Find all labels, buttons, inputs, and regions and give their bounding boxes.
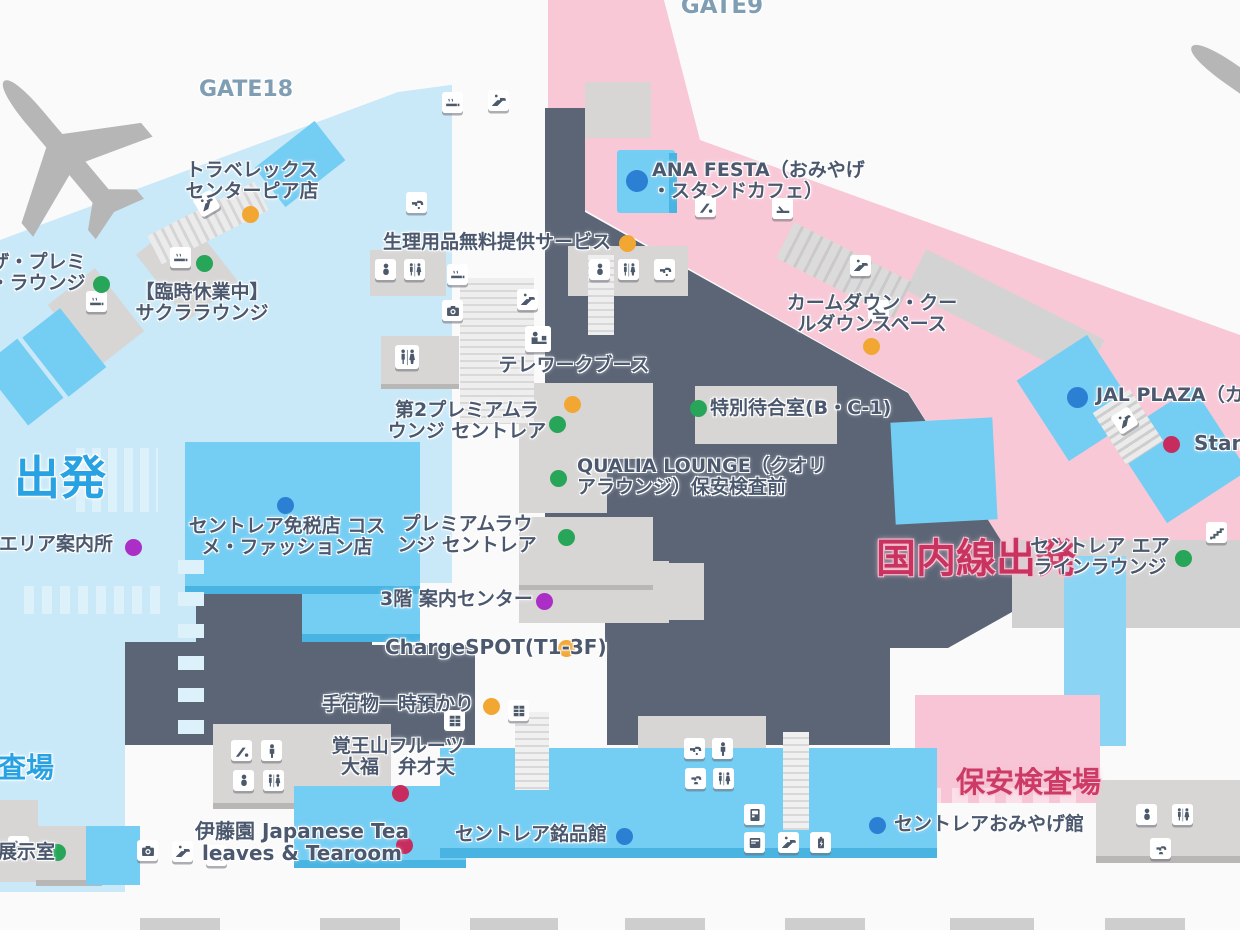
telework-booth-dot[interactable] xyxy=(564,396,581,413)
charging-station-icon xyxy=(810,832,831,853)
centrair-meihinkan-dot[interactable] xyxy=(616,828,633,845)
mens-room-icon xyxy=(712,738,733,759)
centrair-airline-lounge: セントレア エアラインラウンジ xyxy=(1030,536,1170,579)
kakuozan-fruit-daifuku-benzaiten-dot[interactable] xyxy=(392,785,409,802)
restricted-area-info: 限エリア案内所 xyxy=(0,534,113,555)
restricted-area-info-dot[interactable] xyxy=(125,539,142,556)
baby-care-icon xyxy=(1136,804,1157,825)
photo-booth-icon xyxy=(137,840,158,861)
chargespot-t1-3f: ChargeSPOT(T1-3F) xyxy=(385,636,607,658)
stairs xyxy=(515,712,549,790)
travelex-centrair-pier-dot[interactable] xyxy=(242,206,259,223)
stand-shop-dot[interactable] xyxy=(1163,436,1180,453)
baby-care-icon xyxy=(589,259,610,280)
photo-booth-icon xyxy=(442,300,463,321)
ana-festa-stand-cafe: ANA FESTA（おみやげ・スタンドカフェ） xyxy=(652,160,865,203)
smoking-room-icon xyxy=(86,291,107,312)
departures-label: 出発 xyxy=(14,453,106,505)
centrair-airline-lounge-dot[interactable] xyxy=(1175,550,1192,567)
qualia-lounge: QUALIA LOUNGE（クオリアラウンジ）保安検査前 xyxy=(577,456,827,499)
special-waiting-room-dot[interactable] xyxy=(690,400,707,417)
restroom-icon xyxy=(618,259,639,280)
stairs xyxy=(783,732,809,830)
smoking-room-icon xyxy=(447,264,468,285)
sakura-lounge-closed: 【臨時休業中】サクララウンジ xyxy=(135,282,268,325)
escalator-icon xyxy=(488,90,509,111)
kids-slide-icon xyxy=(231,740,252,761)
info-center-3f: 3階 案内センター xyxy=(380,589,533,610)
centrair-duty-free-cosme-fashion: セントレア免税店 コスメ・ファッション店 xyxy=(189,516,386,559)
travelex-centrair-pier: トラベレックスセンターピア店 xyxy=(185,160,318,203)
faucet-icon xyxy=(684,738,705,759)
premium-lounge-centrair: プレミアムラウンジ セントレア xyxy=(397,514,537,557)
jal-plaza-cafe-dot[interactable] xyxy=(1067,387,1088,408)
secure-area-notch xyxy=(196,594,302,642)
qualia-lounge-dot[interactable] xyxy=(550,470,567,487)
the-premium-lounge: ザ・プレミ・ラウンジ xyxy=(0,252,86,295)
sanitary-items-free-service: 生理用品無料提供サービス xyxy=(383,232,611,253)
telework-booth-icon xyxy=(525,326,551,352)
crosswalk-stripes xyxy=(24,586,164,614)
special-waiting-room: 特別待合室(B・C-1) xyxy=(710,398,891,419)
escalator-icon xyxy=(850,255,871,276)
sanitary-items-free-service-dot[interactable] xyxy=(619,235,636,252)
centrair-duty-free-cosme-fashion-dot[interactable] xyxy=(277,497,294,514)
escalator-icon xyxy=(517,289,538,310)
faucet-icon xyxy=(654,259,675,280)
restroom-icon xyxy=(404,259,425,280)
premium-lounge-centrair-dot[interactable] xyxy=(558,529,575,546)
telework-booth: テレワークブース xyxy=(498,355,649,376)
restroom-icon xyxy=(263,770,284,791)
restroom-icon xyxy=(713,768,734,789)
centrair-omiyage-hall-dot[interactable] xyxy=(869,817,886,834)
smoking-room-icon xyxy=(442,92,463,113)
kakuozan-fruit-daifuku-benzaiten: 覚王山フルーツ大福 弁才天 xyxy=(332,736,465,779)
centrair-omiyage-hall: セントレアおみやげ館 xyxy=(894,814,1084,835)
drinking-fountain-icon xyxy=(1150,838,1171,859)
crosswalk-stripes xyxy=(178,560,204,746)
premium-lounge-centrair-2: 第2プレミアムラウンジ セントレア xyxy=(388,400,547,443)
calm-down-cool-down-space: カームダウン・クールダウンスペース xyxy=(787,293,957,336)
inspection-area-partial: 検査場 xyxy=(0,752,54,783)
security-checkpoint-label: 保安検査場 xyxy=(956,766,1101,798)
info-center-3f-dot[interactable] xyxy=(536,593,553,610)
mens-room-icon xyxy=(261,740,282,761)
exhibition-room: 展示室 xyxy=(0,842,55,863)
coin-locker-icon xyxy=(508,700,529,721)
vending-machine-icon xyxy=(744,804,765,825)
stand-shop: Stand xyxy=(1194,432,1240,454)
baby-care-icon xyxy=(375,259,396,280)
itoen-japanese-tea-tearoom: 伊藤園 Japanese Tealeaves & Tearoom xyxy=(195,820,409,865)
gate18-label: GATE18 xyxy=(199,78,293,103)
premium-lounge-centrair-2-dot[interactable] xyxy=(549,416,566,433)
restroom-icon xyxy=(395,345,419,369)
faucet-icon xyxy=(406,192,427,213)
the-premium-lounge-dot[interactable] xyxy=(93,276,110,293)
calm-down-cool-down-space-dot[interactable] xyxy=(863,338,880,355)
smoking-room-icon xyxy=(170,247,191,268)
drinking-fountain-icon xyxy=(685,768,706,789)
sakura-lounge-closed-dot[interactable] xyxy=(196,255,213,272)
centrair-meihinkan: セントレア銘品館 xyxy=(455,824,607,845)
escalator-icon xyxy=(778,832,799,853)
jal-plaza-cafe: JAL PLAZA（カフ xyxy=(1096,385,1240,406)
stairs-icon xyxy=(1206,522,1227,543)
baby-care-icon xyxy=(233,770,254,791)
terminal-floor-map: GATE9GATE18トラベレックスセンターピア店ザ・プレミ・ラウンジ【臨時休業… xyxy=(0,0,1240,930)
ana-festa-stand-cafe-dot[interactable] xyxy=(626,170,648,192)
baggage-temporary-storage: 手荷物一時預かり xyxy=(322,694,474,715)
atm-icon xyxy=(744,832,765,853)
gate9-label: GATE9 xyxy=(681,0,763,20)
restroom-icon xyxy=(1172,804,1193,825)
baggage-temporary-storage-dot[interactable] xyxy=(483,698,500,715)
escalator-icon xyxy=(172,841,193,862)
